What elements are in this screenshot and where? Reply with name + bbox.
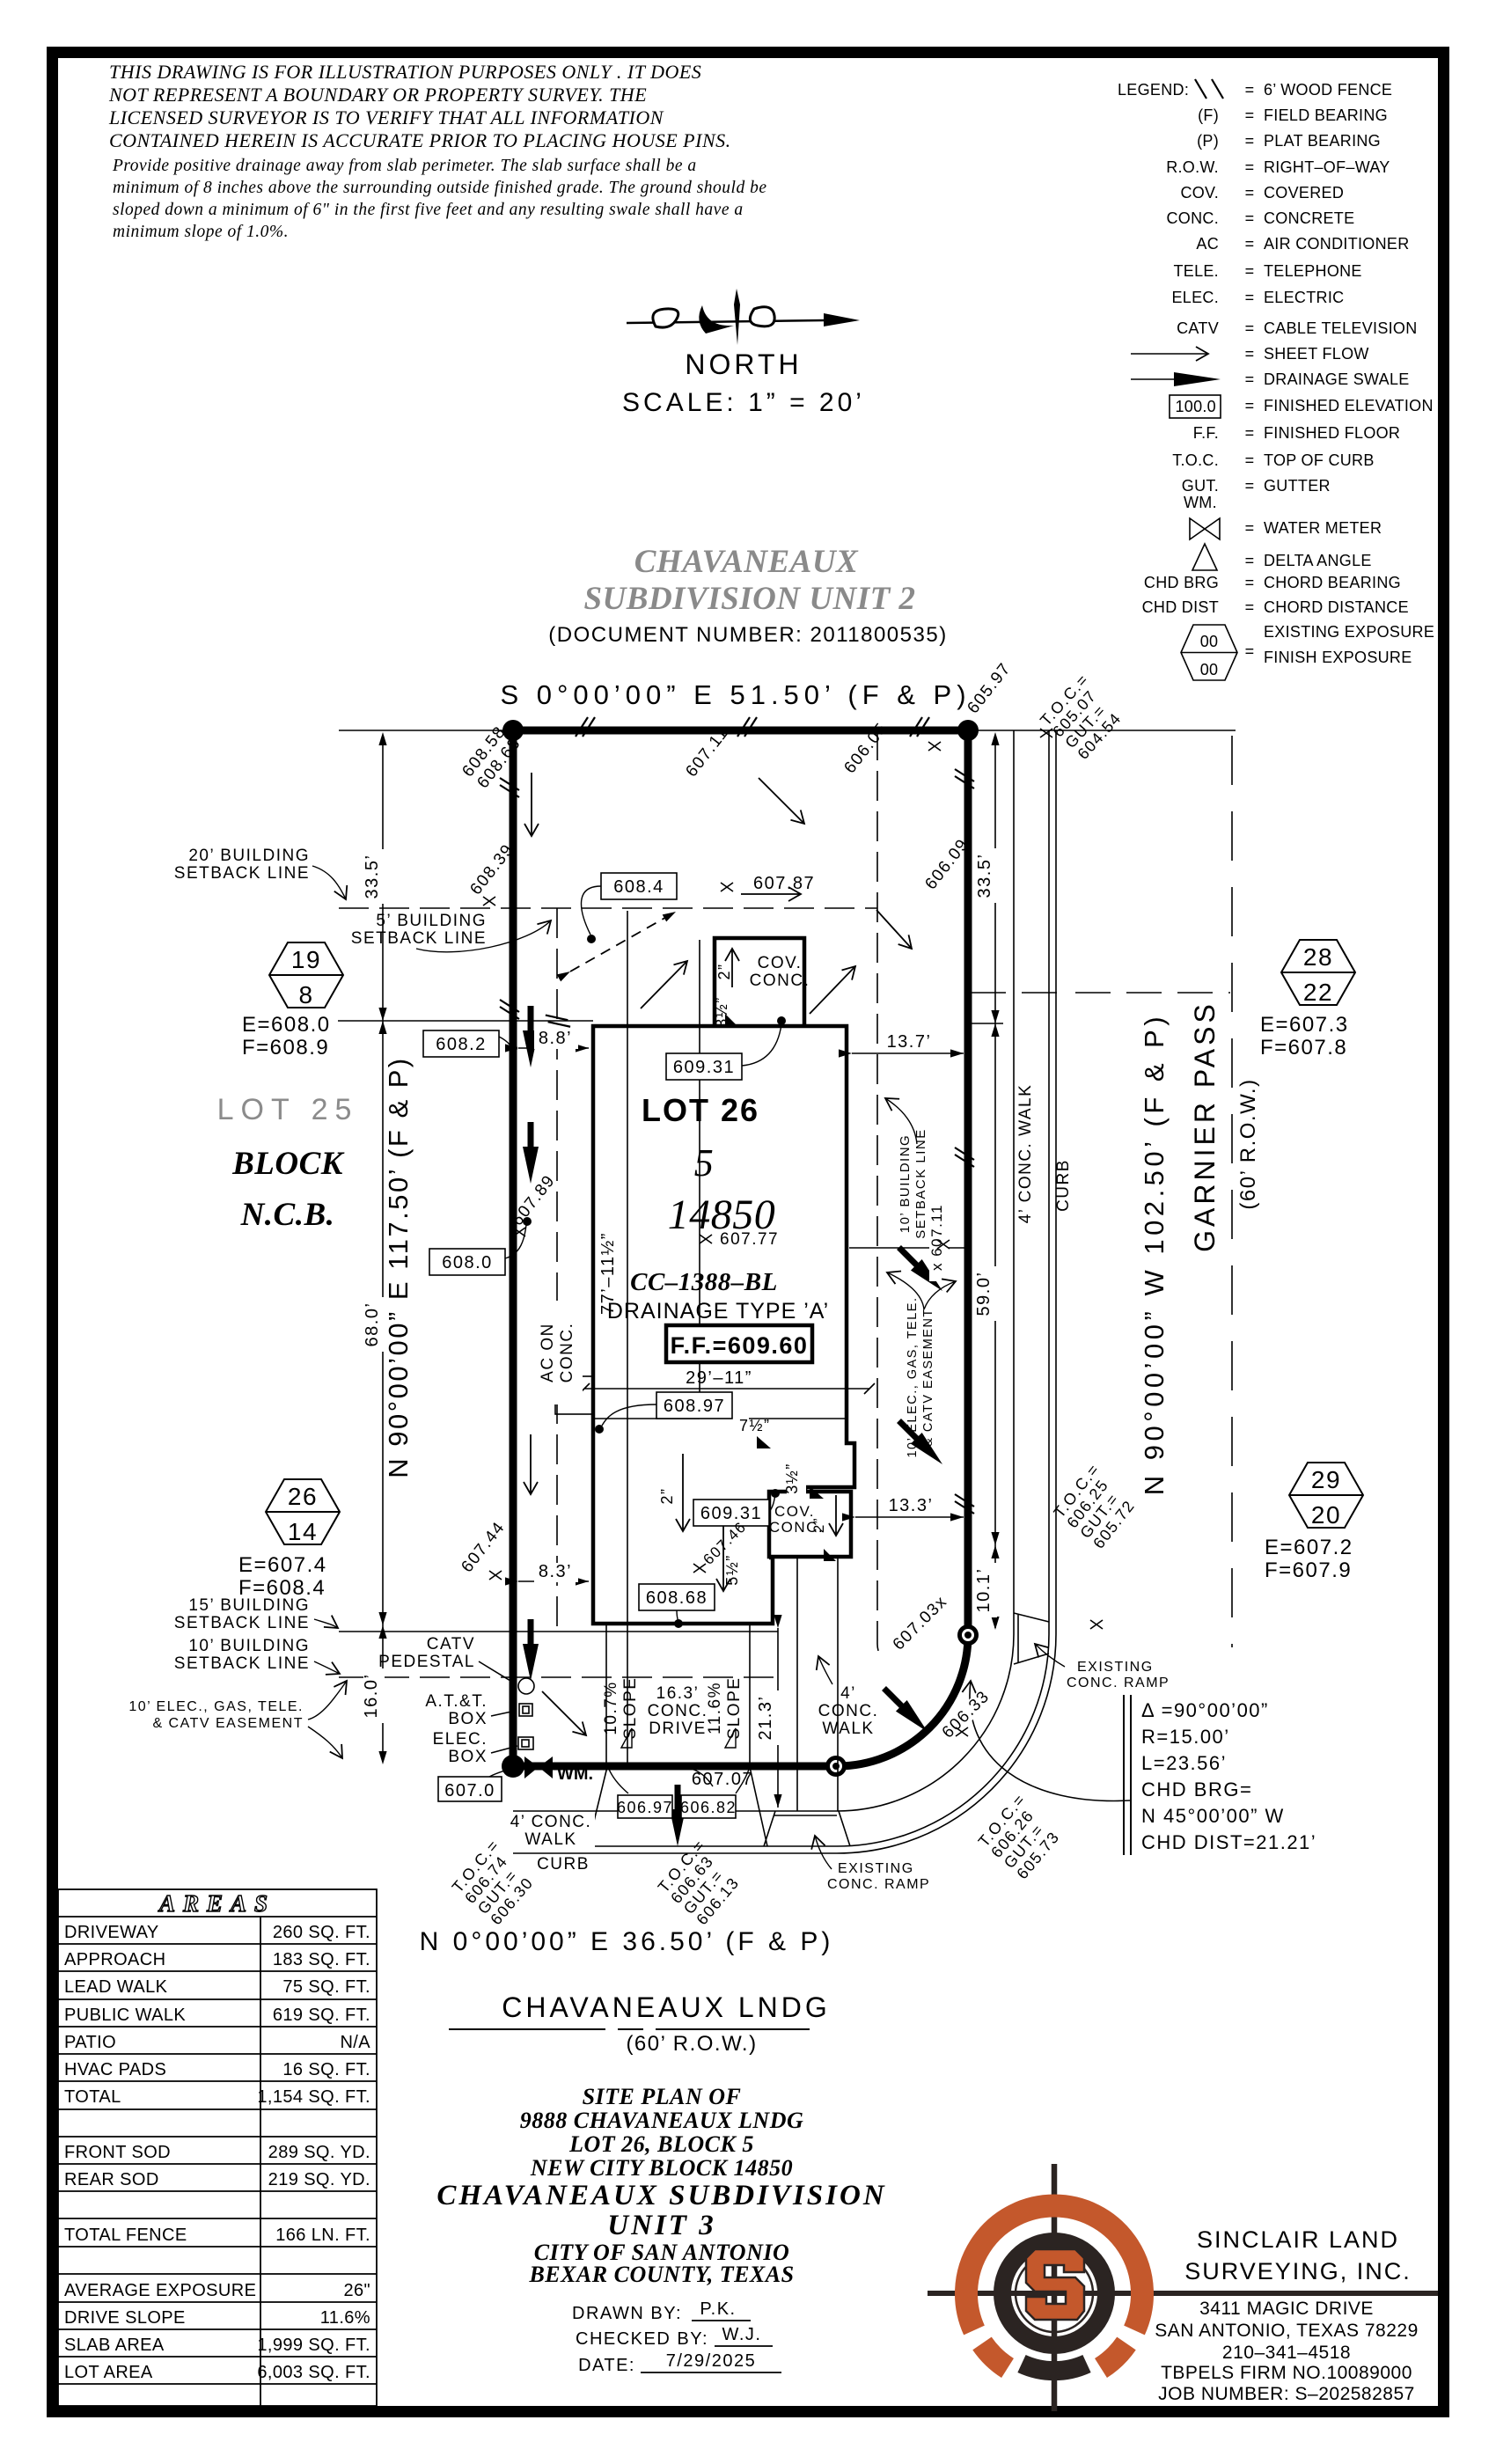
svg-text:TOTAL FENCE: TOTAL FENCE <box>64 2226 187 2245</box>
svg-text:4’: 4’ <box>840 1684 856 1703</box>
svg-text:SITE PLAN OF: SITE PLAN OF <box>583 2084 742 2109</box>
svg-text:GUT.: GUT. <box>1182 477 1219 495</box>
svg-text:=: = <box>1245 424 1255 442</box>
svg-text:CONC.: CONC. <box>750 972 810 990</box>
svg-text:APPROACH: APPROACH <box>64 1950 165 1969</box>
svg-text:5½”: 5½” <box>723 1554 741 1586</box>
svg-text:WALK: WALK <box>822 1720 874 1738</box>
svg-text:=: = <box>1245 345 1255 363</box>
svg-text:=: = <box>1245 289 1255 306</box>
svg-text:DRIVE: DRIVE <box>649 1720 707 1738</box>
svg-text:R=15.00’: R=15.00’ <box>1141 1726 1230 1748</box>
svg-text:SETBACK LINE: SETBACK LINE <box>174 1614 310 1632</box>
svg-text:AVERAGE EXPOSURE: AVERAGE EXPOSURE <box>64 2281 256 2300</box>
svg-text:ELECTRIC: ELECTRIC <box>1264 289 1344 306</box>
svg-text:DRAINAGE TYPE ’A’: DRAINAGE TYPE ’A’ <box>607 1299 829 1324</box>
svg-text:6’ WOOD FENCE: 6’ WOOD FENCE <box>1264 81 1392 99</box>
svg-text:=: = <box>1245 397 1255 414</box>
svg-text:1,154 SQ. FT.: 1,154 SQ. FT. <box>257 2087 370 2107</box>
svg-text:CATV: CATV <box>1177 319 1219 337</box>
svg-text:22: 22 <box>1303 979 1333 1006</box>
svg-text:LICENSED SURVEYOR IS TO VERIFY: LICENSED SURVEYOR IS TO VERIFY THAT ALL … <box>108 106 664 128</box>
svg-text:=: = <box>1245 209 1255 227</box>
svg-text:608.4: 608.4 <box>613 877 664 897</box>
svg-text:RIGHT–OF–WAY: RIGHT–OF–WAY <box>1264 158 1390 176</box>
svg-text:SETBACK LINE: SETBACK LINE <box>351 929 487 948</box>
svg-text:14: 14 <box>288 1518 318 1545</box>
svg-text:11.6%: 11.6% <box>320 2308 370 2328</box>
svg-text:SETBACK LINE: SETBACK LINE <box>913 1128 928 1239</box>
svg-text:BOX: BOX <box>448 1748 488 1766</box>
svg-text:WATER METER: WATER METER <box>1264 519 1382 537</box>
svg-text:EXISTING: EXISTING <box>1077 1660 1154 1675</box>
svg-text:16.0’: 16.0’ <box>362 1674 381 1719</box>
svg-text:WALK: WALK <box>524 1830 576 1849</box>
svg-text:SETBACK LINE: SETBACK LINE <box>174 1654 310 1673</box>
svg-text:SLAB AREA: SLAB AREA <box>64 2336 165 2355</box>
svg-text:CONC. RAMP: CONC. RAMP <box>1067 1676 1170 1690</box>
svg-text:LEAD WALK: LEAD WALK <box>64 1977 168 1997</box>
svg-text:F=608.9: F=608.9 <box>242 1036 329 1060</box>
svg-text:606.82: 606.82 <box>680 1799 737 1816</box>
svg-text:EXISTING: EXISTING <box>838 1861 914 1876</box>
svg-text:26": 26" <box>343 2281 370 2300</box>
svg-text:TOTAL: TOTAL <box>64 2087 121 2107</box>
svg-text:DRIVE SLOPE: DRIVE SLOPE <box>64 2308 186 2328</box>
svg-text:608.0: 608.0 <box>442 1253 493 1272</box>
svg-text:5: 5 <box>694 1141 715 1184</box>
svg-text:(60’ R.O.W.): (60’ R.O.W.) <box>626 2032 757 2056</box>
svg-text:DATE:: DATE: <box>578 2356 635 2375</box>
svg-text:AC: AC <box>1196 235 1219 253</box>
svg-text:LOT 26: LOT 26 <box>642 1092 759 1128</box>
svg-text:WM.: WM. <box>1184 494 1217 511</box>
svg-text:=: = <box>1245 132 1255 150</box>
svg-text:TOP OF CURB: TOP OF CURB <box>1264 451 1375 469</box>
svg-text:F=608.4: F=608.4 <box>238 1576 326 1600</box>
svg-text:CONC.: CONC. <box>818 1702 879 1720</box>
svg-text:COV.: COV. <box>774 1503 815 1520</box>
svg-text:260 SQ. FT.: 260 SQ. FT. <box>273 1923 370 1942</box>
svg-text:F=607.8: F=607.8 <box>1260 1036 1347 1060</box>
svg-text:CHECKED BY:: CHECKED BY: <box>576 2329 708 2349</box>
svg-text:N.C.B.: N.C.B. <box>240 1197 335 1233</box>
svg-text:A.T.&T.: A.T.&T. <box>425 1692 488 1711</box>
svg-text:7/29/2025: 7/29/2025 <box>666 2351 756 2371</box>
svg-text:00: 00 <box>1200 661 1219 678</box>
svg-text:20: 20 <box>1311 1501 1341 1529</box>
svg-text:COVERED: COVERED <box>1264 184 1344 202</box>
svg-text:DRAWN BY:: DRAWN BY: <box>572 2304 682 2323</box>
svg-text:THIS DRAWING IS FOR ILLUSTRATI: THIS DRAWING IS FOR ILLUSTRATION PURPOSE… <box>109 61 701 83</box>
svg-text:FRONT SOD: FRONT SOD <box>64 2143 171 2162</box>
svg-text:Provide positive drainage away: Provide positive drainage away from slab… <box>112 157 697 175</box>
svg-text:COV.: COV. <box>1180 184 1219 202</box>
svg-text:CHAVANEAUX LNDG: CHAVANEAUX LNDG <box>502 1991 831 2023</box>
svg-text:CHAVANEAUX: CHAVANEAUX <box>634 544 859 580</box>
svg-text:13.7’: 13.7’ <box>887 1032 932 1052</box>
svg-text:DRIVEWAY: DRIVEWAY <box>64 1923 159 1942</box>
svg-text:JOB NUMBER: S–202582857: JOB NUMBER: S–202582857 <box>1158 2384 1415 2404</box>
svg-text:=: = <box>1245 642 1255 660</box>
svg-text:10.1’: 10.1’ <box>974 1568 994 1613</box>
svg-text:N/A: N/A <box>340 2033 370 2052</box>
svg-text:(DOCUMENT NUMBER: 2011800535): (DOCUMENT NUMBER: 2011800535) <box>548 623 947 647</box>
svg-text:FINISHED ELEVATION: FINISHED ELEVATION <box>1264 397 1434 414</box>
svg-text:COV.: COV. <box>758 954 803 972</box>
svg-text:F=607.9: F=607.9 <box>1265 1558 1352 1582</box>
svg-text:608.68: 608.68 <box>646 1588 708 1608</box>
svg-text:HVAC PADS: HVAC PADS <box>64 2060 166 2079</box>
svg-text:PLAT BEARING: PLAT BEARING <box>1264 132 1381 150</box>
svg-text:CHD BRG=: CHD BRG= <box>1141 1778 1252 1800</box>
svg-text:6,003 SQ. FT.: 6,003 SQ. FT. <box>257 2363 370 2382</box>
svg-text:00: 00 <box>1200 633 1219 650</box>
svg-text:AC ON: AC ON <box>539 1323 557 1382</box>
svg-text:TBPELS FIRM NO.10089000: TBPELS FIRM NO.10089000 <box>1161 2363 1412 2383</box>
svg-text:UNIT 3: UNIT 3 <box>607 2210 715 2241</box>
svg-text:BLOCK: BLOCK <box>231 1146 345 1182</box>
svg-text:E=607.3: E=607.3 <box>1260 1013 1349 1037</box>
svg-text:NEW CITY BLOCK 14850: NEW CITY BLOCK 14850 <box>530 2155 793 2181</box>
svg-text:LOT 25: LOT 25 <box>217 1093 359 1126</box>
svg-text:CC–1388–BL: CC–1388–BL <box>630 1268 778 1296</box>
svg-text:BEXAR COUNTY, TEXAS: BEXAR COUNTY, TEXAS <box>528 2262 794 2287</box>
svg-text:AIR CONDITIONER: AIR CONDITIONER <box>1264 235 1410 253</box>
svg-text:CONC.: CONC. <box>1167 209 1220 227</box>
svg-text:& CATV EASEMENT: & CATV EASEMENT <box>921 1308 935 1447</box>
svg-text:LEGEND:: LEGEND: <box>1118 81 1189 99</box>
svg-text:CHORD BEARING: CHORD BEARING <box>1264 574 1401 591</box>
svg-text:CHD DIST=21.21’: CHD DIST=21.21’ <box>1141 1831 1316 1853</box>
svg-text:=: = <box>1245 184 1255 202</box>
svg-text:=: = <box>1245 477 1255 495</box>
svg-text:W.J.: W.J. <box>722 2325 762 2344</box>
svg-text:S 0°00’00” E 51.50’ (F & P: S 0°00’00” E 51.50’ (F & P) <box>500 679 971 710</box>
svg-text:=: = <box>1245 451 1255 469</box>
svg-text:183 SQ. FT.: 183 SQ. FT. <box>273 1950 370 1969</box>
svg-text:607.0: 607.0 <box>444 1781 495 1800</box>
svg-text:SURVEYING, INC.: SURVEYING, INC. <box>1184 2258 1412 2284</box>
svg-text:77’–11½”: 77’–11½” <box>598 1232 618 1315</box>
svg-text:8.8’: 8.8’ <box>539 1029 572 1048</box>
svg-text:33.5’: 33.5’ <box>363 854 382 899</box>
svg-text:16.3’: 16.3’ <box>656 1684 700 1703</box>
svg-text:CONC.: CONC. <box>648 1702 708 1720</box>
svg-text:75 SQ. FT.: 75 SQ. FT. <box>282 1977 370 1997</box>
svg-text:607.87: 607.87 <box>753 874 815 893</box>
svg-text:10’ ELEC., GAS, TELE.: 10’ ELEC., GAS, TELE. <box>128 1699 304 1714</box>
svg-text:CATV: CATV <box>427 1635 475 1654</box>
svg-text:=: = <box>1245 598 1255 616</box>
svg-text:LOT AREA: LOT AREA <box>64 2363 153 2382</box>
svg-text:10’ ELEC., GAS, TELE.: 10’ ELEC., GAS, TELE. <box>906 1296 920 1457</box>
svg-text:=: = <box>1245 574 1255 591</box>
svg-text:609.31: 609.31 <box>700 1504 762 1523</box>
svg-text:(F): (F) <box>1198 106 1219 124</box>
svg-text:=: = <box>1245 370 1255 388</box>
svg-text:26: 26 <box>288 1483 318 1510</box>
svg-text:REAR SOD: REAR SOD <box>64 2170 159 2189</box>
svg-text:607.77: 607.77 <box>720 1230 779 1249</box>
svg-text:=: = <box>1245 552 1255 569</box>
svg-text:T.O.C.: T.O.C. <box>1172 451 1219 469</box>
svg-text:AREAS: AREAS <box>158 1890 275 1917</box>
svg-text:CHAVANEAUX SUBDIVISION: CHAVANEAUX SUBDIVISION <box>436 2180 886 2211</box>
svg-text:11.6%: 11.6% <box>706 1682 724 1734</box>
svg-text:8: 8 <box>298 981 313 1008</box>
svg-text:minimum slope of 1.0%.: minimum slope of 1.0%. <box>113 223 289 241</box>
svg-text:=: = <box>1245 319 1255 337</box>
svg-text:608.97: 608.97 <box>664 1397 725 1416</box>
svg-text:sloped down a minimum of 6" in: sloped down a minimum of 6" in the first… <box>113 201 744 219</box>
svg-text:10’ BUILDING: 10’ BUILDING <box>188 1637 310 1655</box>
svg-text:210–341–4518: 210–341–4518 <box>1222 2343 1351 2363</box>
svg-text:2”: 2” <box>810 1517 827 1533</box>
svg-text:CONCRETE: CONCRETE <box>1264 209 1354 227</box>
svg-text:PUBLIC WALK: PUBLIC WALK <box>64 2006 186 2025</box>
svg-text:619 SQ. FT.: 619 SQ. FT. <box>273 2006 370 2025</box>
svg-text:CONTAINED HEREIN IS ACCURATE P: CONTAINED HEREIN IS ACCURATE PRIOR TO PL… <box>109 129 731 151</box>
svg-text:68.0’: 68.0’ <box>363 1302 382 1347</box>
svg-text:SUBDIVISION UNIT 2: SUBDIVISION UNIT 2 <box>583 581 915 617</box>
svg-text:=: = <box>1245 106 1255 124</box>
svg-text:608.2: 608.2 <box>436 1035 487 1054</box>
svg-text:R.O.W.: R.O.W. <box>1166 158 1219 176</box>
svg-text:8.3’: 8.3’ <box>539 1562 572 1581</box>
svg-text:E=608.0: E=608.0 <box>242 1013 331 1037</box>
svg-text:3½”: 3½” <box>713 996 730 1028</box>
svg-text:TELEPHONE: TELEPHONE <box>1264 262 1362 280</box>
svg-text:3½”: 3½” <box>783 1463 801 1494</box>
svg-text:DELTA ANGLE: DELTA ANGLE <box>1264 552 1372 569</box>
svg-text:SETBACK LINE: SETBACK LINE <box>174 864 310 883</box>
svg-text:GUTTER: GUTTER <box>1264 477 1331 495</box>
svg-text:2”: 2” <box>715 963 733 979</box>
svg-text:x 607.11: x 607.11 <box>928 1204 945 1271</box>
svg-text:609.31: 609.31 <box>673 1058 735 1077</box>
svg-text:SAN ANTONIO, TEXAS 78229: SAN ANTONIO, TEXAS 78229 <box>1155 2321 1419 2341</box>
svg-text:FINISH EXPOSURE: FINISH EXPOSURE <box>1264 649 1412 666</box>
svg-text:CHORD DISTANCE: CHORD DISTANCE <box>1264 598 1409 616</box>
svg-text:F.F.=609.60: F.F.=609.60 <box>671 1332 809 1359</box>
svg-text:=: = <box>1245 235 1255 253</box>
svg-text:BOX: BOX <box>448 1710 488 1728</box>
svg-text:SHEET FLOW: SHEET FLOW <box>1264 345 1369 363</box>
svg-text:7½”: 7½” <box>739 1417 771 1434</box>
svg-text:19: 19 <box>291 946 321 973</box>
svg-text:ELEC.: ELEC. <box>1171 289 1219 306</box>
svg-text:CURB: CURB <box>537 1855 590 1874</box>
svg-text:(60’ R.O.W.): (60’ R.O.W.) <box>1236 1078 1260 1209</box>
svg-text:5’ BUILDING: 5’ BUILDING <box>376 912 487 930</box>
svg-text:606.97: 606.97 <box>617 1799 673 1816</box>
svg-text:ELEC.: ELEC. <box>433 1730 488 1749</box>
svg-text:FINISHED FLOOR: FINISHED FLOOR <box>1264 424 1400 442</box>
svg-text:CONC. RAMP: CONC. RAMP <box>827 1877 930 1892</box>
svg-text:=: = <box>1245 81 1255 99</box>
svg-text:PATIO: PATIO <box>64 2033 116 2052</box>
svg-text:Δ =90°00’00”: Δ =90°00’00” <box>1141 1699 1269 1721</box>
svg-text:LOT 26, BLOCK 5: LOT 26, BLOCK 5 <box>568 2131 754 2157</box>
svg-text:10.7%: 10.7% <box>602 1681 620 1734</box>
svg-text:1,999 SQ. FT.: 1,999 SQ. FT. <box>257 2336 370 2355</box>
svg-text:21.3’: 21.3’ <box>756 1696 775 1741</box>
svg-text:TELE.: TELE. <box>1173 262 1219 280</box>
svg-text:(P): (P) <box>1197 132 1219 150</box>
svg-text:100.0: 100.0 <box>1175 398 1216 415</box>
svg-text:P.K.: P.K. <box>700 2299 736 2319</box>
svg-text:4’ CONC.: 4’ CONC. <box>510 1813 592 1831</box>
svg-text:WM.: WM. <box>557 1764 593 1784</box>
svg-text:29: 29 <box>1311 1466 1341 1493</box>
svg-text:20’ BUILDING: 20’ BUILDING <box>188 847 310 865</box>
svg-text:CABLE TELEVISION: CABLE TELEVISION <box>1264 319 1418 337</box>
svg-text:PEDESTAL: PEDESTAL <box>378 1653 475 1671</box>
svg-text:E=607.2: E=607.2 <box>1265 1536 1353 1559</box>
svg-text:=: = <box>1245 262 1255 280</box>
svg-text:SINCLAIR LAND: SINCLAIR LAND <box>1197 2226 1399 2253</box>
svg-text:16 SQ. FT.: 16 SQ. FT. <box>282 2060 370 2079</box>
svg-text:N 0°00’00” E 36.50’ (F & P: N 0°00’00” E 36.50’ (F & P) <box>420 1927 834 1956</box>
svg-text:L=23.56’: L=23.56’ <box>1141 1752 1227 1774</box>
svg-text:289 SQ. YD.: 289 SQ. YD. <box>268 2143 370 2162</box>
svg-text:29’–11”: 29’–11” <box>686 1368 752 1388</box>
svg-text:& CATV EASEMENT: & CATV EASEMENT <box>152 1716 304 1731</box>
svg-text:E=607.4: E=607.4 <box>238 1553 327 1577</box>
svg-text:CHD DIST: CHD DIST <box>1142 598 1219 616</box>
svg-text:GARNIER PASS: GARNIER PASS <box>1189 1001 1221 1252</box>
svg-text:minimum of 8 inches above the: minimum of 8 inches above the surroundin… <box>113 179 767 197</box>
svg-text:13.3’: 13.3’ <box>889 1496 934 1515</box>
svg-text:2”: 2” <box>658 1487 676 1504</box>
svg-text:NORTH: NORTH <box>685 348 802 380</box>
svg-text:N 45°00’00” W: N 45°00’00” W <box>1141 1805 1285 1827</box>
svg-text:CONC.: CONC. <box>558 1323 576 1383</box>
svg-text:3411 MAGIC DRIVE: 3411 MAGIC DRIVE <box>1199 2299 1374 2319</box>
svg-text:N 90°00’00” E 117.50’ (F &: N 90°00’00” E 117.50’ (F & P) <box>383 1056 414 1478</box>
svg-text:28: 28 <box>1303 943 1333 971</box>
svg-text:NOT REPRESENT A BOUNDARY OR PR: NOT REPRESENT A BOUNDARY OR PROPERTY SUR… <box>108 84 647 106</box>
svg-text:EXISTING EXPOSURE: EXISTING EXPOSURE <box>1264 623 1434 641</box>
svg-text:59.0’: 59.0’ <box>974 1272 994 1316</box>
svg-text:DRAINAGE SWALE: DRAINAGE SWALE <box>1264 370 1410 388</box>
svg-text:9888 CHAVANEAUX LNDG: 9888 CHAVANEAUX LNDG <box>520 2108 804 2133</box>
svg-text:219 SQ. YD.: 219 SQ. YD. <box>268 2170 370 2189</box>
svg-text:4’ CONC. WALK: 4’ CONC. WALK <box>1016 1084 1035 1224</box>
svg-text:CURB: CURB <box>1054 1159 1073 1212</box>
svg-text:=: = <box>1245 158 1255 176</box>
svg-text:FIELD BEARING: FIELD BEARING <box>1264 106 1388 124</box>
svg-text:CHD BRG: CHD BRG <box>1144 574 1219 591</box>
svg-text:166 LN. FT.: 166 LN. FT. <box>275 2226 370 2245</box>
svg-text:=: = <box>1245 519 1255 537</box>
svg-text:N 90°00’00” W 102.50’ (F &: N 90°00’00” W 102.50’ (F & P) <box>1139 1013 1170 1495</box>
svg-text:33.5’: 33.5’ <box>975 854 994 898</box>
svg-text:F.F.: F.F. <box>1193 424 1219 442</box>
svg-text:10’ BUILDING: 10’ BUILDING <box>898 1134 913 1233</box>
svg-text:SCALE: 1” = 20’: SCALE: 1” = 20’ <box>622 388 865 417</box>
